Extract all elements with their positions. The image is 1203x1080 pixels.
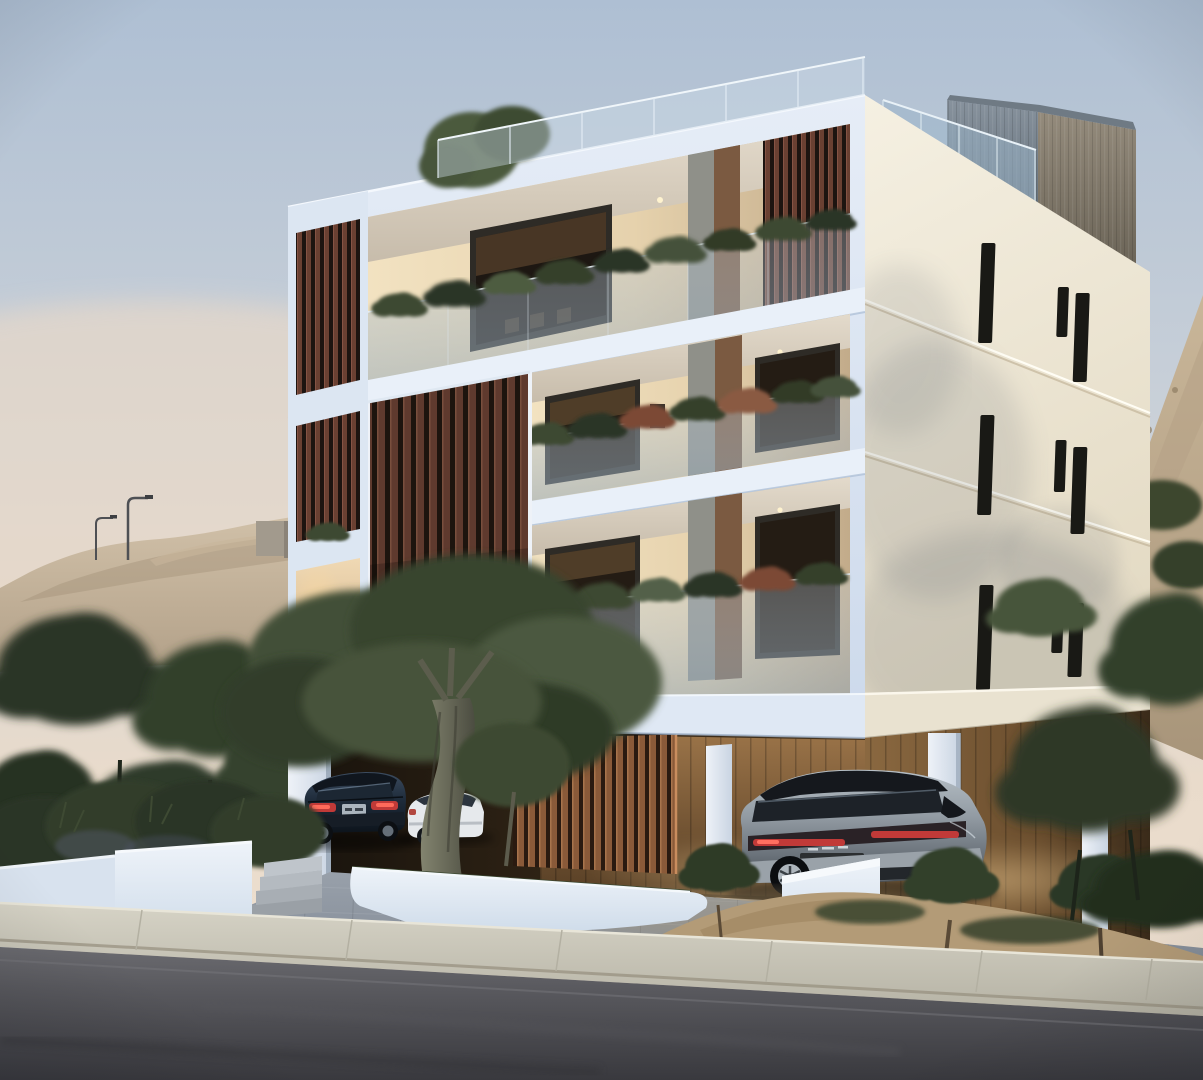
render-canvas bbox=[0, 0, 1203, 1080]
architectural-render bbox=[0, 0, 1203, 1080]
vignette bbox=[0, 0, 1203, 1080]
